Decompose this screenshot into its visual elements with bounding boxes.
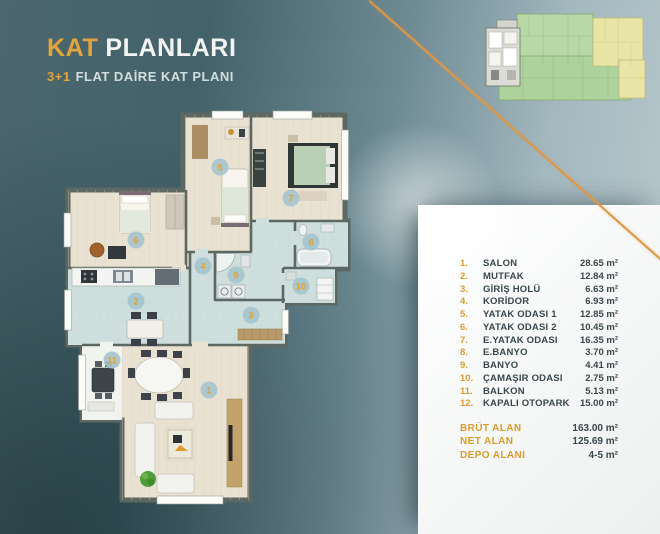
room-marker-salon: 1	[201, 382, 218, 399]
svg-text:8: 8	[308, 237, 313, 248]
room-list-row: 4.KORİDOR6.93 m²	[460, 296, 618, 309]
total-row-depo-alani: DEPO ALANI4-5 m²	[460, 449, 618, 462]
room-name: KAPALI OTOPARK	[483, 398, 580, 411]
room-marker-camasir-odasi: 10	[293, 278, 310, 295]
room-name: E.YATAK ODASI	[483, 335, 580, 348]
room-marker-yatak-odasi-2: 6	[128, 232, 145, 249]
room-area: 3.70 m²	[585, 347, 618, 360]
room-list-row: 1.SALON28.65 m²	[460, 258, 618, 271]
room-name: BALKON	[483, 386, 585, 399]
room-name: MUTFAK	[483, 271, 580, 284]
room-list-row: 2.MUTFAK12.84 m²	[460, 271, 618, 284]
room-number: 5.	[460, 309, 483, 322]
room-name: SALON	[483, 258, 580, 271]
svg-text:1: 1	[206, 385, 212, 396]
room-number: 12.	[460, 398, 483, 411]
room-list: 1.SALON28.65 m² 2.MUTFAK12.84 m² 3.GİRİŞ…	[460, 258, 618, 411]
room-list-row: 5.YATAK ODASI 112.85 m²	[460, 309, 618, 322]
room-marker-e-banyo: 8	[303, 234, 320, 251]
room-number: 3.	[460, 284, 483, 297]
room-area: 12.85 m²	[580, 309, 618, 322]
subtitle-accent: 3+1	[47, 69, 71, 84]
room-name: ÇAMAŞIR ODASI	[483, 373, 585, 386]
room-area: 12.84 m²	[580, 271, 618, 284]
room-area: 6.93 m²	[585, 296, 618, 309]
room-area: 10.45 m²	[580, 322, 618, 335]
room-name: YATAK ODASI 2	[483, 322, 580, 335]
room-name: BANYO	[483, 360, 585, 373]
furniture-giris-bench	[238, 329, 282, 340]
title-rest: PLANLARI	[105, 34, 236, 62]
page-header: KATPLANLARI 3+1FLAT DAİRE KAT PLANI	[47, 36, 237, 83]
room-number: 2.	[460, 271, 483, 284]
total-value: 125.69 m²	[572, 435, 618, 448]
room-area: 4.41 m²	[585, 360, 618, 373]
svg-text:6: 6	[133, 235, 138, 246]
svg-text:11: 11	[107, 355, 118, 366]
floor-plan: 1 2 3 4 5 6 7 8	[55, 105, 365, 530]
room-number: 10.	[460, 373, 483, 386]
area-totals: BRÜT ALAN163.00 m² NET ALAN125.69 m² DEP…	[460, 422, 618, 462]
svg-text:5: 5	[217, 162, 223, 173]
svg-text:3: 3	[248, 310, 253, 321]
title-accent: KAT	[47, 34, 98, 62]
room-area: 5.13 m²	[585, 386, 618, 399]
page-subtitle: 3+1FLAT DAİRE KAT PLANI	[47, 70, 237, 83]
room-name: GİRİŞ HOLÜ	[483, 284, 585, 297]
room-name: KORİDOR	[483, 296, 585, 309]
svg-text:7: 7	[288, 193, 293, 204]
room-area: 15.00 m²	[580, 398, 618, 411]
room-number: 6.	[460, 322, 483, 335]
room-marker-giris-holu: 3	[243, 307, 260, 324]
total-value: 4-5 m²	[589, 449, 618, 462]
room-marker-mutfak: 2	[128, 293, 145, 310]
brochure-page: KATPLANLARI 3+1FLAT DAİRE KAT PLANI	[0, 0, 660, 534]
room-number: 8.	[460, 347, 483, 360]
room-name: E.BANYO	[483, 347, 585, 360]
total-label: NET ALAN	[460, 435, 572, 448]
room-list-row: 11.BALKON5.13 m²	[460, 386, 618, 399]
room-number: 4.	[460, 296, 483, 309]
total-value: 163.00 m²	[572, 422, 618, 435]
room-marker-yatak-odasi-1: 5	[212, 159, 229, 176]
total-label: DEPO ALANI	[460, 449, 589, 462]
room-list-row: 8.E.BANYO3.70 m²	[460, 347, 618, 360]
room-area: 6.63 m²	[585, 284, 618, 297]
room-area: 2.75 m²	[585, 373, 618, 386]
room-area: 16.35 m²	[580, 335, 618, 348]
subtitle-rest: FLAT DAİRE KAT PLANI	[76, 69, 234, 84]
room-name: YATAK ODASI 1	[483, 309, 580, 322]
svg-text:10: 10	[296, 281, 307, 292]
room-marker-e-yatak-odasi: 7	[283, 190, 300, 207]
room-marker-banyo: 9	[228, 267, 245, 284]
room-number: 1.	[460, 258, 483, 271]
total-row-net-alan: NET ALAN125.69 m²	[460, 435, 618, 448]
room-number: 7.	[460, 335, 483, 348]
room-number: 9.	[460, 360, 483, 373]
room-list-row: 6.YATAK ODASI 210.45 m²	[460, 322, 618, 335]
room-list-row: 9.BANYO4.41 m²	[460, 360, 618, 373]
total-label: BRÜT ALAN	[460, 422, 572, 435]
svg-text:2: 2	[133, 296, 138, 307]
room-list-row: 7.E.YATAK ODASI16.35 m²	[460, 335, 618, 348]
key-plan-highlighted-unit	[486, 20, 520, 86]
svg-text:4: 4	[200, 261, 206, 272]
svg-text:9: 9	[233, 270, 238, 281]
room-list-row: 12.KAPALI OTOPARK15.00 m²	[460, 398, 618, 411]
room-number: 11.	[460, 386, 483, 399]
room-list-row: 3.GİRİŞ HOLÜ6.63 m²	[460, 284, 618, 297]
room-marker-balkon: 11	[104, 352, 121, 369]
room-area: 28.65 m²	[580, 258, 618, 271]
room-marker-koridor: 4	[195, 258, 212, 275]
total-row-brut-alan: BRÜT ALAN163.00 m²	[460, 422, 618, 435]
page-title: KATPLANLARI	[47, 36, 237, 61]
room-list-row: 10.ÇAMAŞIR ODASI2.75 m²	[460, 373, 618, 386]
building-key-plan	[483, 6, 658, 106]
